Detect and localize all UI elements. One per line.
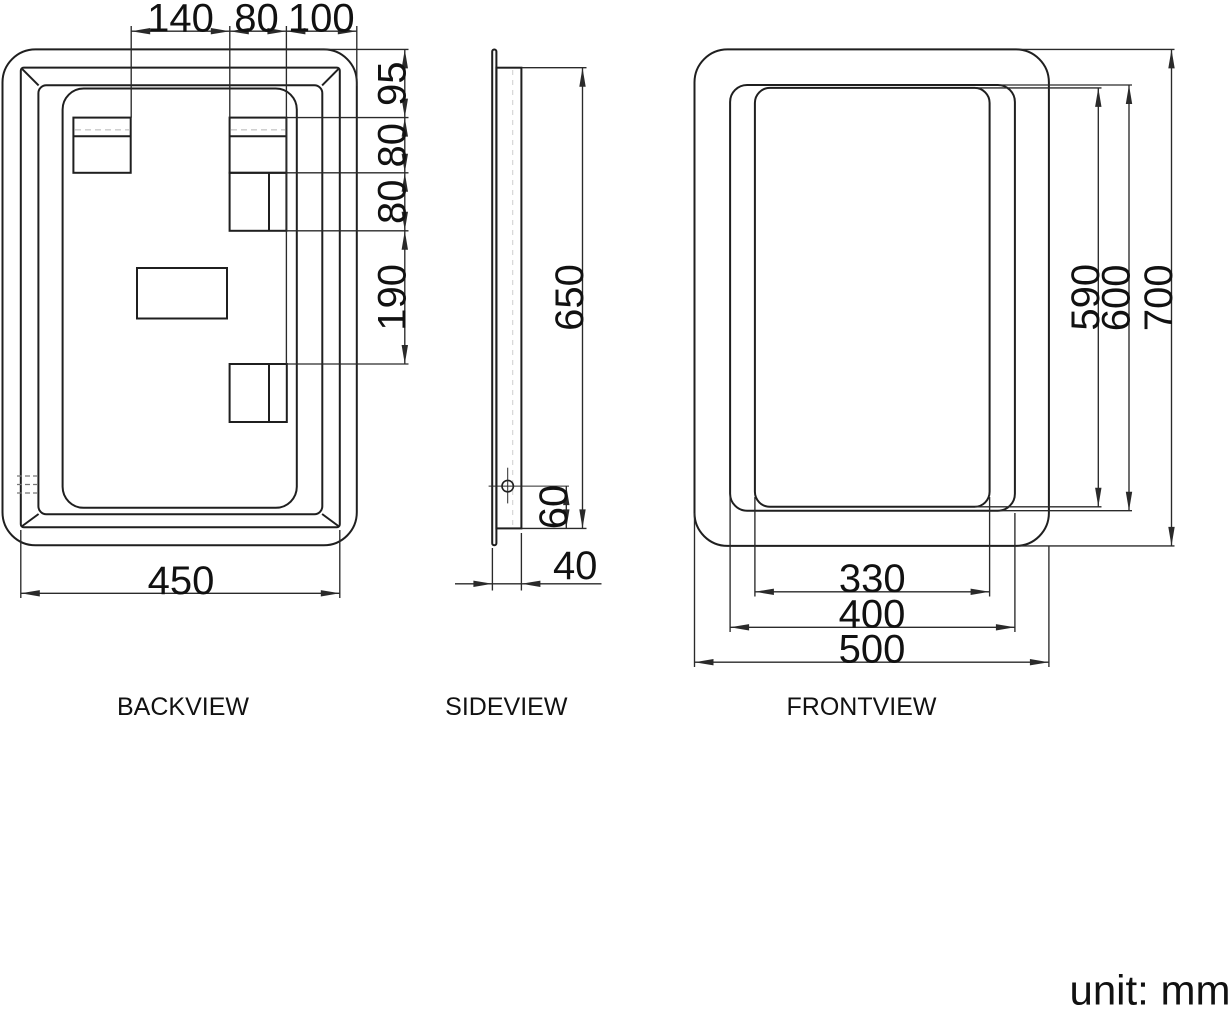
svg-text:140: 140 — [147, 0, 214, 41]
svg-text:80: 80 — [371, 123, 415, 168]
svg-text:450: 450 — [148, 559, 215, 603]
svg-text:650: 650 — [548, 264, 592, 331]
svg-text:unit: mm: unit: mm — [1069, 967, 1230, 1009]
svg-text:80: 80 — [371, 180, 415, 225]
svg-text:600: 600 — [1095, 264, 1139, 331]
svg-text:SIDEVIEW: SIDEVIEW — [445, 693, 568, 721]
svg-text:500: 500 — [839, 628, 906, 672]
svg-text:40: 40 — [553, 544, 598, 588]
svg-text:80: 80 — [234, 0, 279, 41]
svg-text:190: 190 — [371, 264, 415, 331]
svg-text:700: 700 — [1137, 264, 1181, 331]
svg-text:BACKVIEW: BACKVIEW — [117, 693, 249, 721]
svg-text:95: 95 — [371, 62, 415, 107]
svg-text:60: 60 — [532, 485, 576, 530]
svg-text:FRONTVIEW: FRONTVIEW — [787, 693, 937, 721]
svg-text:100: 100 — [288, 0, 355, 41]
